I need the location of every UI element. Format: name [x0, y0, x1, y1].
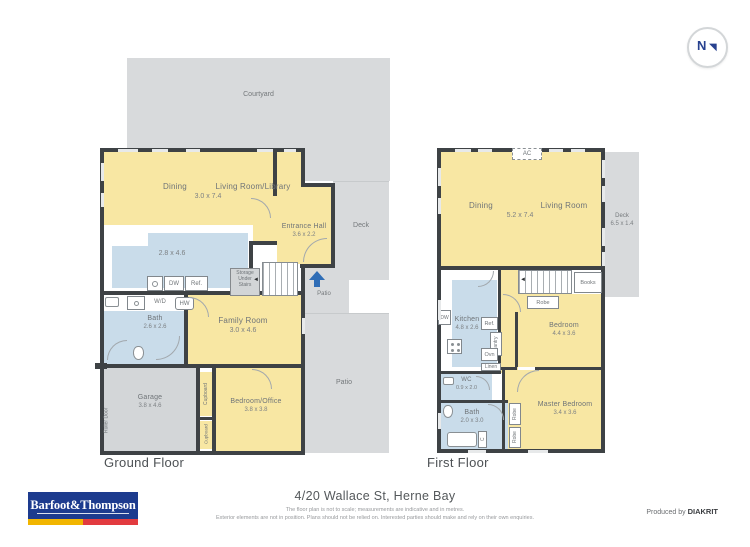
roller-door-label: Roller Door — [102, 396, 111, 444]
wall-segment — [300, 183, 335, 187]
wall-segment — [200, 417, 212, 420]
hw-label: HW — [180, 301, 190, 307]
bedroom-office-dims: 3.8 x 3.8 — [211, 407, 301, 414]
kitchen-label: Kitchen — [442, 316, 492, 324]
bathtub-icon — [447, 432, 477, 447]
ground-stairs — [262, 262, 298, 296]
window-gap — [302, 318, 305, 334]
window-gap — [602, 252, 605, 266]
window-gap — [186, 149, 200, 152]
first-deck-dims: 6.5 x 1.4 — [601, 221, 643, 228]
wall-segment — [249, 241, 277, 245]
books-nook: Books — [574, 272, 602, 293]
window-gap — [528, 450, 548, 453]
laundry-tub-icon — [127, 296, 145, 310]
bath-dims: 2.6 x 2.6 — [130, 324, 180, 331]
first-dining-label: Dining — [441, 201, 521, 211]
producer-name: DIAKRIT — [688, 507, 718, 516]
floor-plan-page: Courtyard Deck Patio Patio — [0, 0, 750, 547]
kitchen-dims: 2.8 x 4.6 — [122, 250, 222, 258]
window-gap — [118, 149, 138, 152]
linen-label: Linen — [485, 364, 497, 370]
living-label: Living Room/Library — [203, 182, 303, 192]
fridge-box: Ref. — [185, 276, 208, 291]
produced-by-label: Produced by — [646, 509, 685, 516]
robe-b-label: Robe — [512, 428, 518, 447]
disclaimer-line-1: The floor plan is not to scale; measurem… — [95, 507, 655, 513]
ref-label: Ref. — [191, 281, 202, 287]
first-deck-label: Deck — [605, 213, 639, 220]
brand-stripe-gold — [28, 519, 83, 525]
robe-a-label: Robe — [512, 404, 518, 424]
entrance-label: Entrance Hall — [274, 223, 334, 231]
window-gap — [101, 163, 104, 181]
wall-segment — [104, 364, 301, 368]
kitchen-notch — [112, 233, 148, 246]
master-bedroom-dims: 3.4 x 3.6 — [525, 410, 605, 417]
window-gap — [602, 186, 605, 202]
first-living-label: Living Room — [524, 201, 604, 211]
bedroom-label: Bedroom — [524, 322, 604, 330]
wd-label: W/D — [148, 299, 172, 306]
window-gap — [152, 149, 168, 152]
bath-label: Bath — [130, 315, 180, 323]
window-gap — [438, 300, 441, 320]
toilet-icon — [133, 346, 144, 360]
linen-box: Linen — [481, 363, 501, 371]
north-arrow-icon: ◥ — [709, 42, 717, 53]
window-gap — [438, 168, 441, 186]
master-bedroom-label: Master Bedroom — [525, 401, 605, 409]
ground-deck-area — [333, 181, 389, 280]
entry-arrow-icon — [309, 271, 325, 288]
hall-robe: Robe — [527, 296, 559, 309]
window-gap — [284, 149, 296, 152]
dw-box: DW — [164, 276, 184, 291]
window-gap — [602, 228, 605, 246]
stove-icon — [447, 339, 462, 354]
ac-label: AC — [523, 151, 531, 157]
robe-a: Robe — [509, 403, 521, 425]
wall-segment — [502, 370, 505, 449]
bedroom-office-label: Bedroom/Office — [211, 398, 301, 406]
first-floor-title: First Floor — [427, 455, 489, 470]
entry-patio-label: Patio — [299, 291, 349, 298]
family-room-dims: 3.0 x 4.6 — [193, 327, 293, 335]
window-gap — [571, 149, 585, 152]
first-stairs — [518, 270, 572, 294]
first-living-dims: 5.2 x 7.4 — [480, 212, 560, 220]
kitchen-dims: 4.8 x 2.6 — [442, 325, 492, 332]
ground-floor-title: Ground Floor — [104, 455, 184, 470]
window-gap — [468, 450, 486, 453]
living-dims: 3.0 x 7.4 — [168, 193, 248, 201]
wall-segment — [441, 371, 501, 374]
produced-by: Produced by DIAKRIT — [590, 507, 718, 516]
window-gap — [101, 193, 104, 207]
window-gap — [478, 149, 492, 152]
oven-label: Ovn — [484, 352, 494, 358]
wc-dims: 0.9 x 2.0 — [441, 385, 492, 392]
stairs-direction-arrow-icon: ◄ — [520, 277, 526, 283]
window-gap — [257, 149, 273, 152]
family-room-label: Family Room — [193, 316, 293, 326]
entrance-dims: 3.6 x 2.2 — [274, 232, 334, 239]
compass-north-indicator: N ◥ — [687, 27, 728, 68]
dw-label: DW — [169, 281, 179, 287]
hall-robe-label: Robe — [536, 300, 549, 306]
window-gap — [438, 413, 441, 429]
stairs-direction-arrow-icon: ◄ — [253, 277, 259, 283]
bath-cupboard: C — [478, 431, 487, 448]
window-gap — [602, 160, 605, 178]
ground-deck-label: Deck — [333, 222, 389, 230]
first-bath-dims: 2.0 x 3.0 — [442, 418, 502, 425]
brand-logo-underline — [37, 513, 129, 514]
window-gap — [455, 149, 471, 152]
wall-segment — [535, 367, 601, 370]
disclaimer-line-2: Exterior elements are not in position. P… — [95, 515, 655, 521]
wc-label: WC — [441, 377, 492, 384]
cupboard-b-label: Cupboard — [200, 421, 212, 448]
property-address: 4/20 Wallace St, Herne Bay — [175, 489, 575, 503]
oven-box: Ovn — [481, 348, 498, 361]
wall-segment — [441, 400, 508, 403]
window-gap — [549, 149, 563, 152]
bedroom-dims: 4.4 x 3.6 — [524, 331, 604, 338]
wall-segment — [95, 363, 107, 369]
robe-b: Robe — [509, 427, 521, 448]
wall-segment — [300, 264, 335, 268]
north-label: N — [697, 38, 706, 53]
bath-cupboard-label: C — [480, 432, 486, 447]
main-patio-label: Patio — [299, 379, 389, 387]
wall-segment — [515, 312, 518, 367]
first-bath-label: Bath — [442, 409, 502, 417]
courtyard-label: Courtyard — [127, 91, 390, 99]
garage-dims: 3.8 x 4.6 — [110, 403, 190, 410]
books-label: Books — [580, 280, 595, 286]
bath-sink-icon — [105, 297, 119, 307]
garage-label: Garage — [110, 394, 190, 402]
ac-unit: AC — [512, 148, 542, 160]
dishdrawer-icon — [147, 276, 163, 291]
